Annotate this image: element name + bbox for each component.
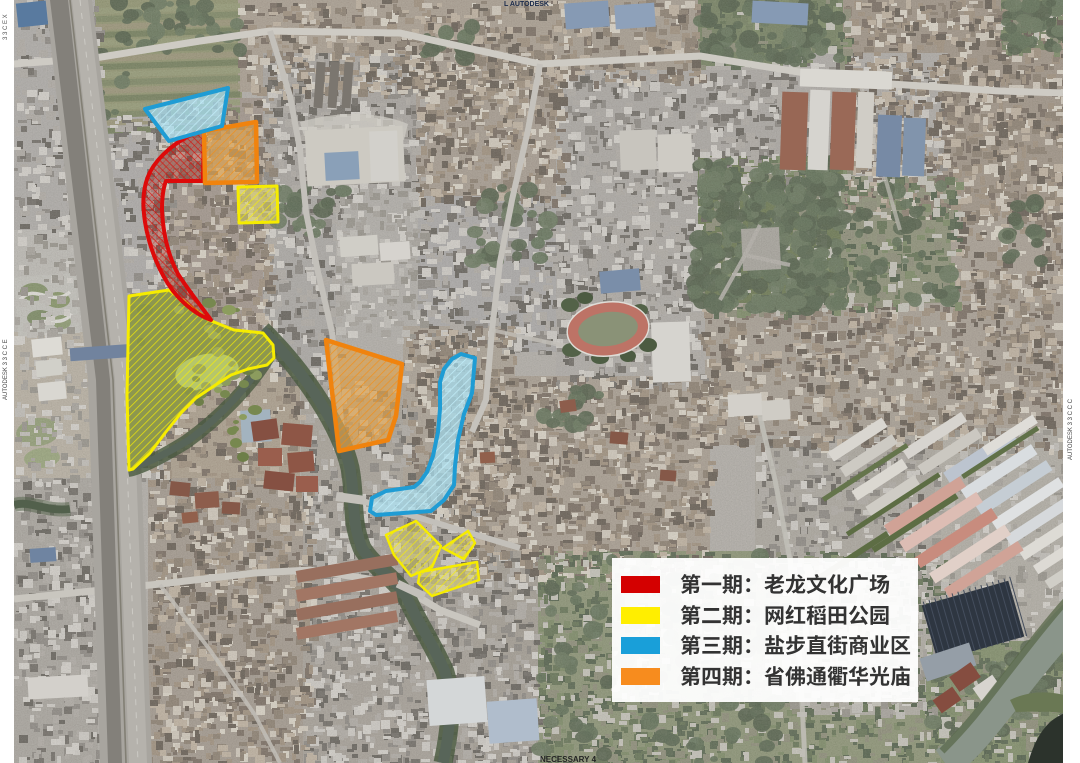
svg-text:L AUTODESK: L AUTODESK <box>504 1 549 8</box>
svg-text:NECESSARY 4: NECESSARY 4 <box>540 755 597 763</box>
svg-text:AUTODESK 3 3 C C E: AUTODESK 3 3 C C E <box>3 339 9 400</box>
svg-text:3 3 C E X: 3 3 C E X <box>3 14 9 40</box>
svg-text:AUTODESK 3 3 C C C: AUTODESK 3 3 C C C <box>1068 398 1074 460</box>
